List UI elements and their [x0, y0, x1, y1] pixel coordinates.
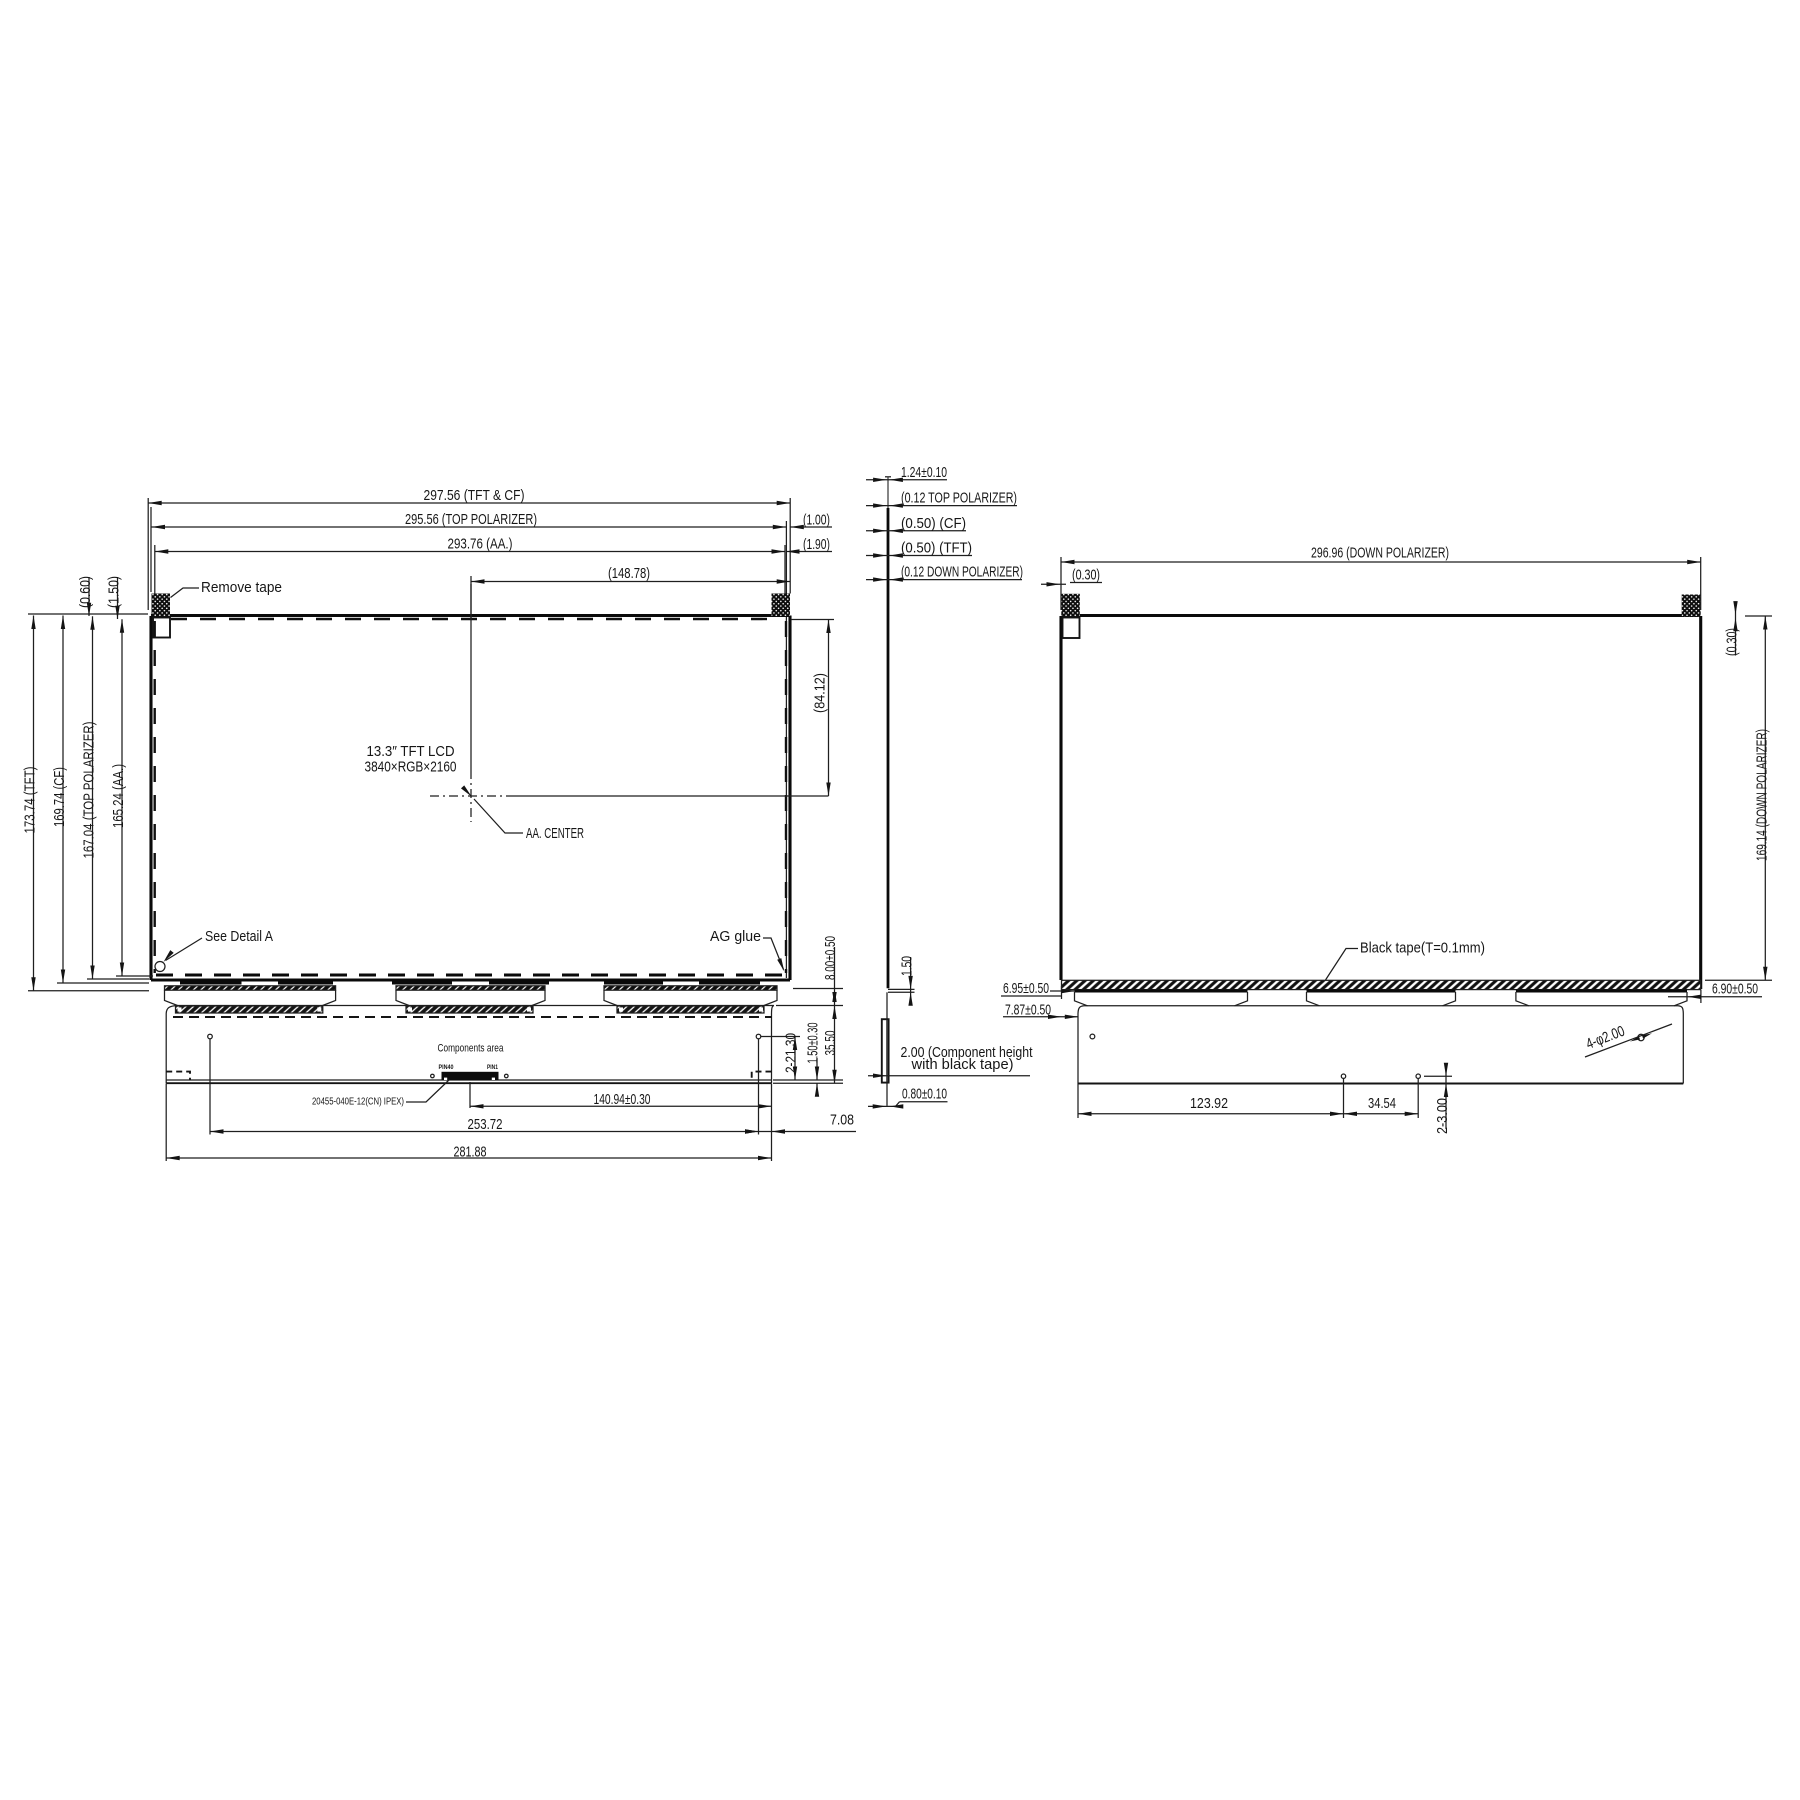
svg-text:Components area: Components area — [438, 1043, 505, 1055]
svg-text:20455-040E-12(CN) IPEX): 20455-040E-12(CN) IPEX) — [312, 1097, 404, 1108]
svg-text:(1.90): (1.90) — [803, 536, 830, 553]
svg-text:(1.00): (1.00) — [803, 512, 830, 529]
svg-text:7.08: 7.08 — [830, 1112, 854, 1129]
svg-text:169.74 (CF): 169.74 (CF) — [51, 767, 68, 827]
svg-text:with black tape): with black tape) — [911, 1056, 1014, 1073]
svg-text:173.74 (TFT): 173.74 (TFT) — [22, 767, 39, 834]
svg-text:8.00±0.50: 8.00±0.50 — [822, 936, 839, 980]
svg-text:AG glue: AG glue — [710, 928, 761, 945]
svg-text:253.72: 253.72 — [468, 1116, 503, 1133]
svg-text:Remove tape: Remove tape — [201, 579, 282, 596]
svg-text:AA. CENTER: AA. CENTER — [526, 825, 584, 842]
svg-text:1.24±0.10: 1.24±0.10 — [901, 464, 947, 481]
svg-text:293.76 (AA.): 293.76 (AA.) — [448, 536, 513, 553]
svg-text:PIN1: PIN1 — [487, 1064, 498, 1071]
svg-text:34.54: 34.54 — [1368, 1095, 1396, 1112]
svg-text:(84.12): (84.12) — [812, 673, 829, 713]
svg-text:(0.30): (0.30) — [1072, 567, 1100, 584]
svg-text:1.50: 1.50 — [899, 956, 916, 976]
svg-text:123.92: 123.92 — [1190, 1095, 1228, 1112]
svg-text:281.88: 281.88 — [454, 1144, 487, 1161]
svg-text:(0.50) (TFT): (0.50) (TFT) — [901, 540, 972, 557]
svg-text:296.96 (DOWN POLARIZER): 296.96 (DOWN POLARIZER) — [1311, 545, 1449, 562]
svg-text:(0.30): (0.30) — [1724, 628, 1741, 656]
svg-text:35.50: 35.50 — [822, 1031, 839, 1056]
svg-text:6.90±0.50: 6.90±0.50 — [1712, 981, 1758, 998]
svg-text:(0.12 DOWN POLARIZER): (0.12 DOWN POLARIZER) — [901, 564, 1023, 581]
svg-text:297.56 (TFT & CF): 297.56 (TFT & CF) — [424, 487, 525, 504]
svg-text:(0.12 TOP POLARIZER): (0.12 TOP POLARIZER) — [901, 490, 1017, 507]
svg-text:295.56 (TOP POLARIZER): 295.56 (TOP POLARIZER) — [405, 511, 537, 528]
svg-text:2-21.30: 2-21.30 — [783, 1033, 800, 1073]
svg-text:167.04 (TOP POLARIZER): 167.04 (TOP POLARIZER) — [81, 722, 98, 859]
svg-text:(1.50): (1.50) — [106, 576, 123, 608]
svg-text:13.3″ TFT LCD: 13.3″ TFT LCD — [367, 743, 455, 760]
svg-text:(0.60): (0.60) — [77, 576, 94, 608]
svg-text:1.50±0.30: 1.50±0.30 — [805, 1023, 822, 1064]
svg-text:3840×RGB×2160: 3840×RGB×2160 — [365, 759, 457, 776]
svg-text:(0.50) (CF): (0.50) (CF) — [901, 515, 966, 532]
svg-text:See Detail A: See Detail A — [205, 928, 273, 945]
svg-text:6.95±0.50: 6.95±0.50 — [1003, 980, 1049, 997]
svg-text:PIN40: PIN40 — [439, 1064, 454, 1071]
svg-text:140.94±0.30: 140.94±0.30 — [594, 1091, 651, 1108]
svg-text:(148.78): (148.78) — [608, 565, 650, 582]
svg-text:165.24 (AA.): 165.24 (AA.) — [110, 764, 127, 828]
svg-text:Black tape(T=0.1mm): Black tape(T=0.1mm) — [1360, 940, 1485, 957]
svg-text:169.14 (DOWN POLARIZER): 169.14 (DOWN POLARIZER) — [1753, 729, 1770, 861]
svg-text:0.80±0.10: 0.80±0.10 — [902, 1086, 947, 1103]
svg-text:7.87±0.50: 7.87±0.50 — [1005, 1002, 1051, 1019]
svg-text:2-3.00: 2-3.00 — [1434, 1098, 1451, 1134]
